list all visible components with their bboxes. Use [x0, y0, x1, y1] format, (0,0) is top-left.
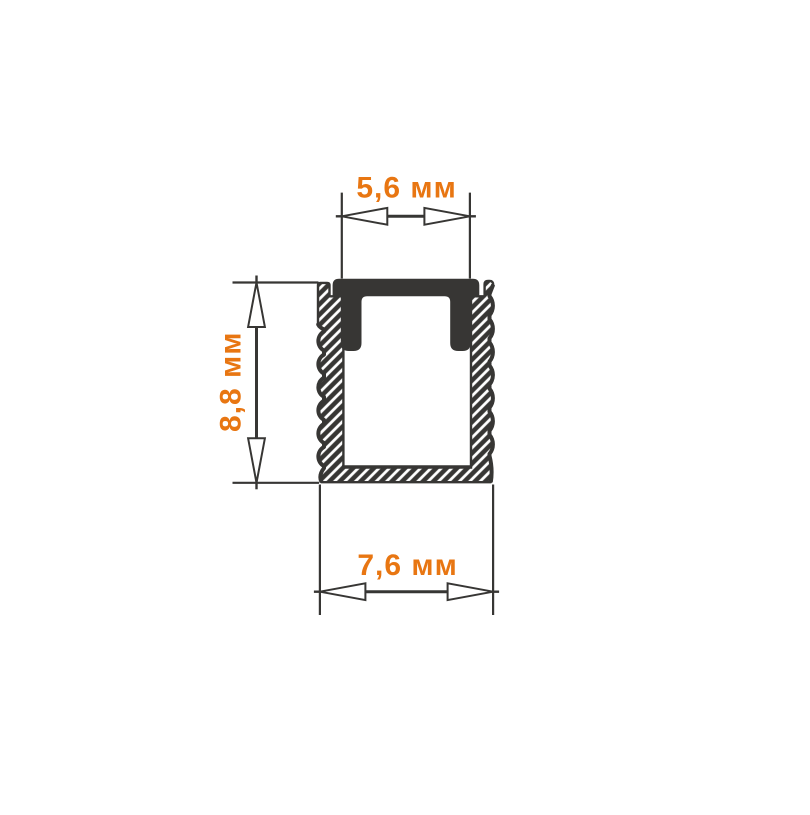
svg-text:5,6 мм: 5,6 мм [356, 171, 456, 204]
svg-text:7,6 мм: 7,6 мм [357, 549, 457, 582]
svg-text:8,8 мм: 8,8 мм [215, 332, 248, 432]
